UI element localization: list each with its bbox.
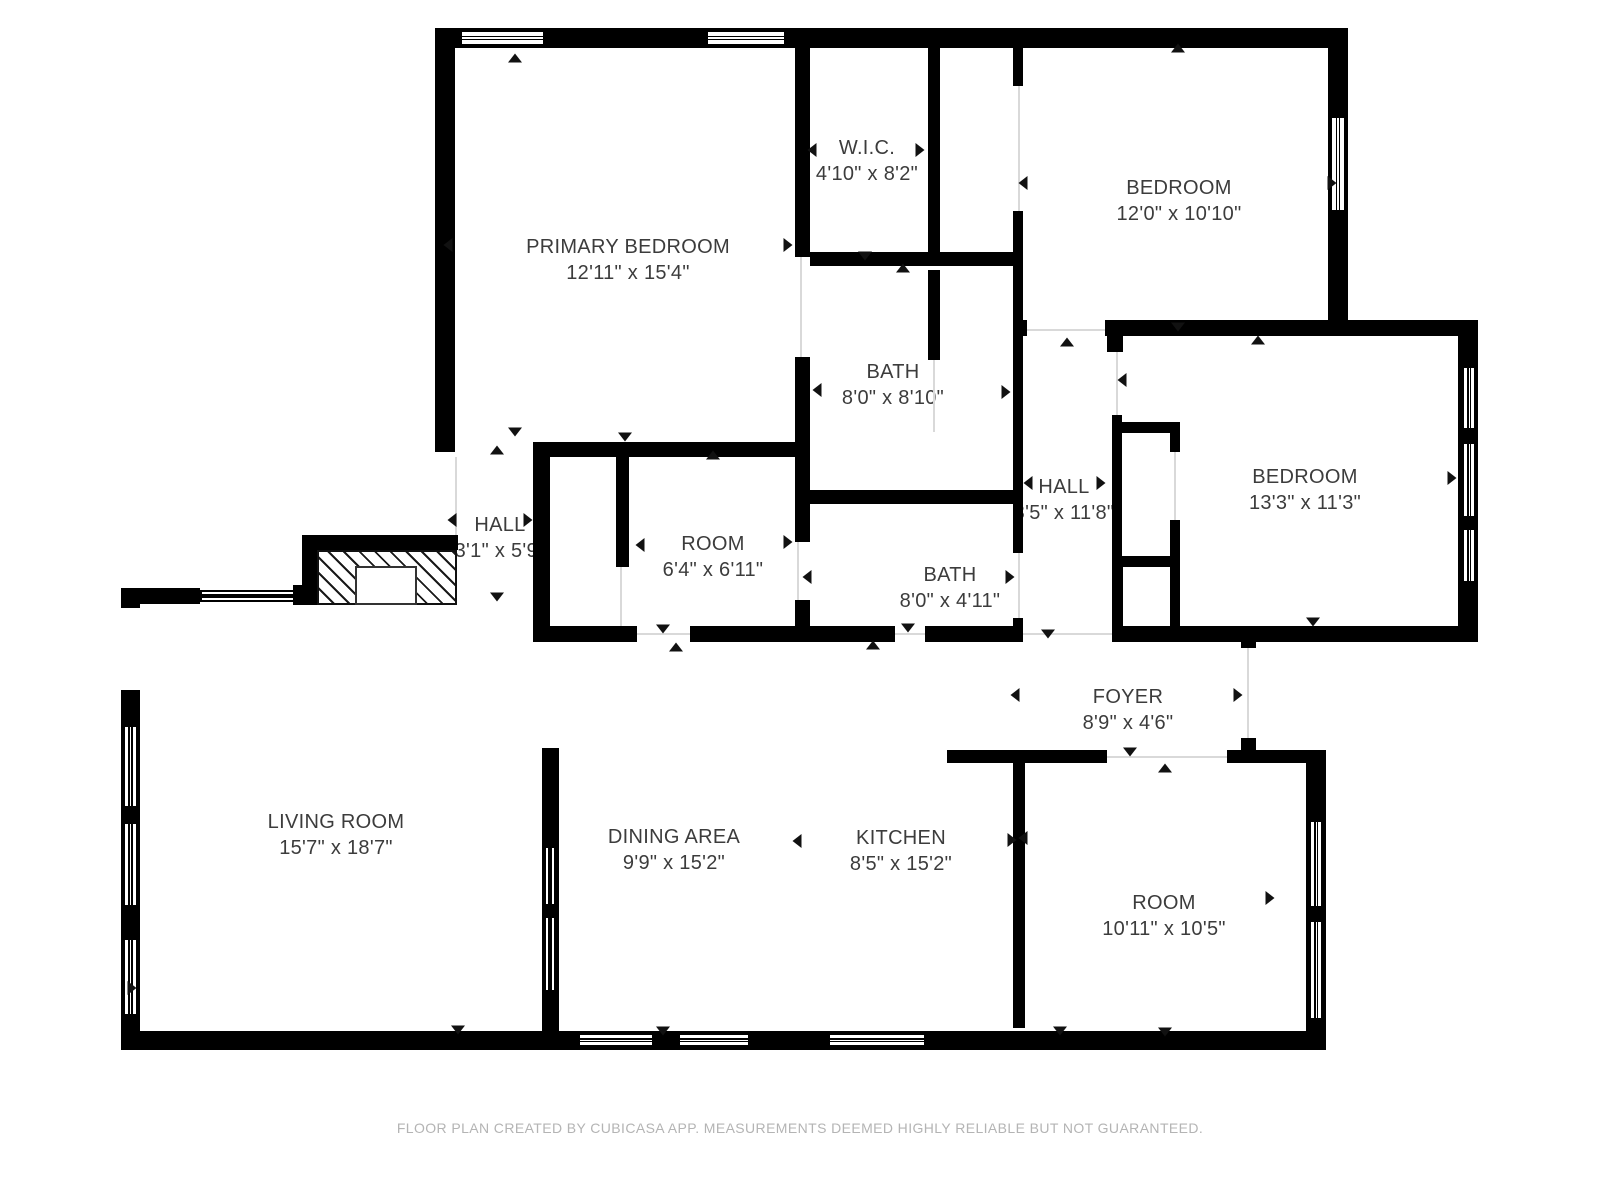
door-direction-marker	[1024, 476, 1033, 490]
door-opening-line	[797, 542, 799, 600]
window-glyph	[706, 30, 786, 46]
room-dimensions: 10'11" x 10'5"	[1102, 916, 1226, 942]
door-opening-line	[1018, 553, 1020, 618]
window-glyph	[678, 1033, 750, 1047]
wall-segment	[925, 626, 1023, 642]
door-direction-marker	[706, 451, 720, 460]
door-direction-marker	[508, 428, 522, 437]
door-direction-marker	[1306, 618, 1320, 627]
door-direction-marker	[1008, 833, 1017, 847]
window-glyph	[578, 1033, 654, 1047]
room-dimensions: 12'11" x 15'4"	[526, 260, 730, 286]
room-dimensions: 8'0" x 8'10"	[842, 385, 944, 411]
door-opening-line	[1027, 329, 1105, 331]
door-opening-line	[1018, 86, 1020, 211]
door-direction-marker	[669, 643, 683, 652]
room-name: ROOM	[663, 531, 764, 557]
wall-segment	[616, 457, 629, 567]
door-direction-marker	[916, 143, 925, 157]
door-direction-marker	[1171, 44, 1185, 53]
wall-segment	[947, 750, 1107, 763]
wall-segment	[1170, 567, 1180, 626]
door-direction-marker	[784, 535, 793, 549]
room-label-living-room: LIVING ROOM15'7" x 18'7"	[268, 809, 405, 861]
door-opening-line	[620, 567, 622, 626]
room-dimensions: 13'3" x 11'3"	[1249, 490, 1361, 516]
door-direction-marker	[813, 383, 822, 397]
door-direction-marker	[490, 593, 504, 602]
door-direction-marker	[1266, 891, 1275, 905]
floor-plan-canvas: PRIMARY BEDROOM12'11" x 15'4"W.I.C.4'10"…	[0, 0, 1600, 1200]
room-name: PRIMARY BEDROOM	[526, 234, 730, 260]
room-label-wic: W.I.C.4'10" x 8'2"	[816, 135, 918, 187]
room-label-bedroom-top-right: BEDROOM12'0" x 10'10"	[1116, 175, 1241, 227]
door-direction-marker	[636, 538, 645, 552]
wall-segment	[1105, 320, 1478, 336]
wall-opening	[121, 608, 140, 690]
door-direction-marker	[1328, 176, 1337, 190]
room-label-bedroom-right: BEDROOM13'3" x 11'3"	[1249, 464, 1361, 516]
fireplace-wall	[293, 585, 315, 605]
wall-segment	[928, 28, 940, 258]
room-name: BATH	[900, 562, 1001, 588]
door-direction-marker	[1158, 1028, 1172, 1037]
room-label-foyer: FOYER8'9" x 4'6"	[1083, 684, 1174, 736]
wall-segment	[533, 457, 550, 642]
room-name: W.I.C.	[816, 135, 918, 161]
door-direction-marker	[1041, 630, 1055, 639]
wall-segment	[1107, 336, 1123, 352]
door-direction-marker	[448, 513, 457, 527]
door-direction-marker	[808, 143, 817, 157]
door-direction-marker	[896, 264, 910, 273]
door-direction-marker	[1158, 764, 1172, 773]
door-direction-marker	[1019, 176, 1028, 190]
room-label-kitchen: KITCHEN8'5" x 15'2"	[850, 825, 952, 877]
room-name: FOYER	[1083, 684, 1174, 710]
door-direction-marker	[444, 238, 453, 252]
room-label-room-small: ROOM6'4" x 6'11"	[663, 531, 764, 583]
door-direction-marker	[793, 834, 802, 848]
room-name: ROOM	[1102, 890, 1226, 916]
window-glyph	[1309, 920, 1323, 1020]
footer-disclaimer: FLOOR PLAN CREATED BY CUBICASA APP. MEAS…	[0, 1120, 1600, 1136]
room-name: LIVING ROOM	[268, 809, 405, 835]
room-label-bath-upper: BATH8'0" x 8'10"	[842, 359, 944, 411]
room-dimensions: 15'7" x 18'7"	[268, 835, 405, 861]
room-dimensions: 3'1" x 5'9"	[455, 538, 546, 564]
window-glyph	[828, 1033, 926, 1047]
window-glyph	[123, 725, 138, 808]
room-name: DINING AREA	[608, 824, 740, 850]
door-direction-marker	[451, 1026, 465, 1035]
fireplace-wall	[302, 535, 458, 550]
wall-segment	[533, 626, 637, 642]
wall-segment	[1013, 28, 1023, 86]
wall-segment	[1013, 320, 1027, 336]
door-opening-line	[1247, 648, 1249, 742]
door-direction-marker	[901, 624, 915, 633]
door-direction-marker	[524, 513, 533, 527]
door-direction-marker	[1006, 570, 1015, 584]
wall-segment	[690, 626, 895, 642]
door-direction-marker	[128, 981, 137, 995]
door-direction-marker	[1060, 338, 1074, 347]
door-direction-marker	[1251, 336, 1265, 345]
wall-segment	[810, 252, 1023, 266]
door-direction-marker	[1097, 476, 1106, 490]
door-direction-marker	[858, 252, 872, 261]
room-dimensions: 4'10" x 8'2"	[816, 161, 918, 187]
door-direction-marker	[1002, 385, 1011, 399]
door-direction-marker	[656, 625, 670, 634]
window-glyph	[123, 938, 138, 1016]
window-glyph	[1462, 442, 1476, 518]
door-opening-line	[1023, 633, 1112, 635]
door-direction-marker	[803, 570, 812, 584]
room-name: BEDROOM	[1116, 175, 1241, 201]
door-direction-marker	[784, 238, 793, 252]
window-glyph	[544, 916, 556, 992]
door-direction-marker	[1011, 688, 1020, 702]
door-opening-line	[895, 633, 925, 635]
wall-segment	[795, 457, 810, 542]
room-dimensions: 8'0" x 4'11"	[900, 588, 1001, 614]
window-glyph	[460, 30, 545, 46]
door-direction-marker	[656, 1027, 670, 1036]
door-direction-marker	[490, 446, 504, 455]
room-dimensions: 9'9" x 15'2"	[608, 850, 740, 876]
door-direction-marker	[1053, 1027, 1067, 1036]
room-dimensions: 6'4" x 6'11"	[663, 557, 764, 583]
window-glyph	[1309, 820, 1323, 908]
door-direction-marker	[618, 433, 632, 442]
room-label-bath-lower: BATH8'0" x 4'11"	[900, 562, 1001, 614]
room-label-primary-bedroom: PRIMARY BEDROOM12'11" x 15'4"	[526, 234, 730, 286]
room-name: BEDROOM	[1249, 464, 1361, 490]
wall-segment	[1013, 750, 1025, 1028]
door-direction-marker	[1118, 373, 1127, 387]
wall-segment	[1112, 626, 1478, 642]
wall-segment	[1112, 556, 1180, 567]
door-opening-line	[1174, 452, 1176, 520]
wall-segment	[1241, 628, 1256, 648]
room-name: BATH	[842, 359, 944, 385]
room-dimensions: 12'0" x 10'10"	[1116, 201, 1241, 227]
door-direction-marker	[1019, 831, 1028, 845]
window-glyph	[544, 846, 556, 906]
wall-segment	[1112, 415, 1122, 567]
door-direction-marker	[1123, 748, 1137, 757]
fireplace-firebox	[355, 566, 417, 605]
door-opening-line	[800, 257, 802, 357]
room-name: KITCHEN	[850, 825, 952, 851]
window-glyph	[1330, 116, 1346, 212]
wall-segment	[533, 442, 810, 457]
wall-segment	[1112, 567, 1123, 626]
door-direction-marker	[508, 54, 522, 63]
room-dimensions: 8'9" x 4'6"	[1083, 710, 1174, 736]
window-glyph	[200, 590, 295, 602]
room-label-room-lower: ROOM10'11" x 10'5"	[1102, 890, 1226, 942]
wall-segment	[795, 490, 1023, 504]
door-direction-marker	[1171, 323, 1185, 332]
wall-segment	[435, 28, 1348, 48]
wall-segment	[1013, 336, 1023, 553]
room-dimensions: 8'5" x 15'2"	[850, 851, 952, 877]
window-glyph	[1462, 366, 1476, 430]
room-label-dining-area: DINING AREA9'9" x 15'2"	[608, 824, 740, 876]
door-direction-marker	[1234, 688, 1243, 702]
wall-segment	[928, 270, 940, 360]
wall-segment	[1170, 422, 1180, 452]
window-glyph	[1462, 528, 1476, 583]
window-glyph	[123, 822, 138, 907]
door-direction-marker	[1448, 471, 1457, 485]
room-dimensions: 3'5" x 11'8"	[1014, 500, 1115, 526]
door-opening-line	[933, 360, 935, 432]
door-direction-marker	[866, 641, 880, 650]
